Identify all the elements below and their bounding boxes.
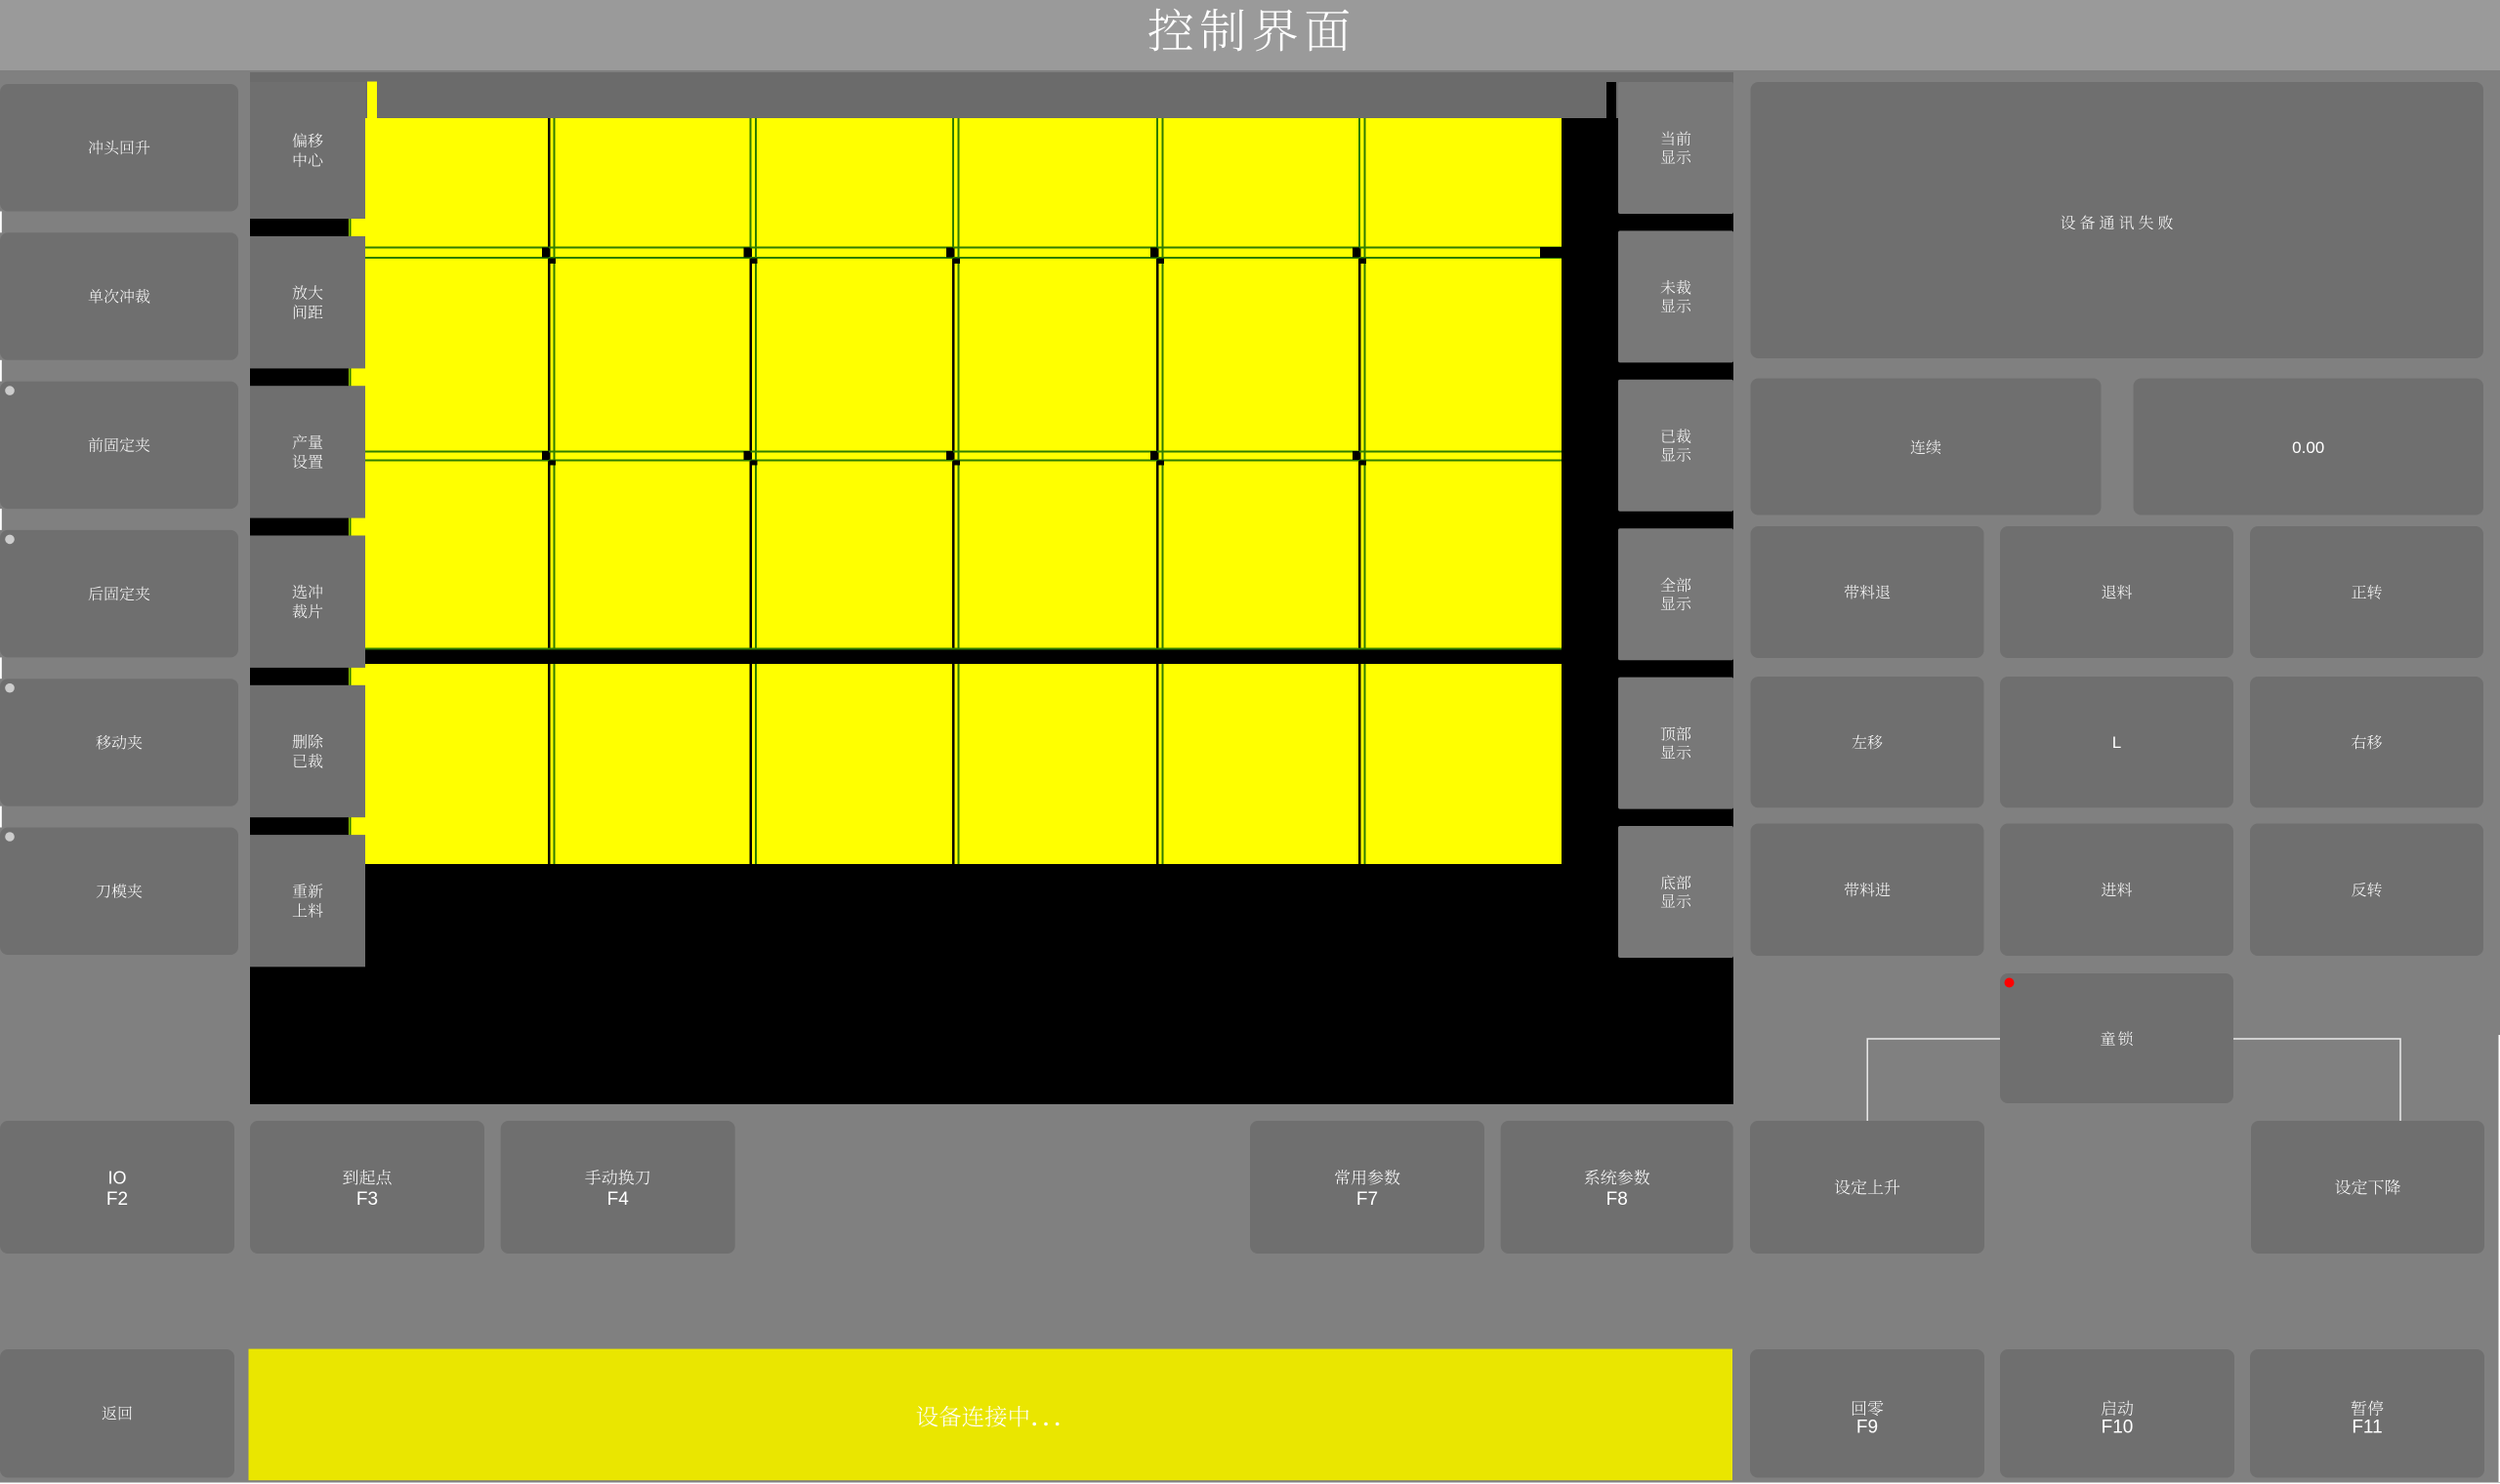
svg-text:0.00: 0.00 [2292, 438, 2324, 457]
svg-text:F3: F3 [356, 1189, 378, 1210]
svg-text:F7: F7 [1356, 1189, 1378, 1210]
svg-text:F4: F4 [607, 1189, 630, 1210]
svg-text:F2: F2 [106, 1189, 128, 1210]
svg-text:F9: F9 [1856, 1418, 1878, 1438]
svg-text:F11: F11 [2352, 1418, 2382, 1438]
svg-text:F8: F8 [1606, 1189, 1628, 1210]
svg-text:IO: IO [107, 1168, 126, 1187]
svg-text:L: L [2112, 733, 2121, 752]
svg-text:F10: F10 [2102, 1418, 2134, 1438]
